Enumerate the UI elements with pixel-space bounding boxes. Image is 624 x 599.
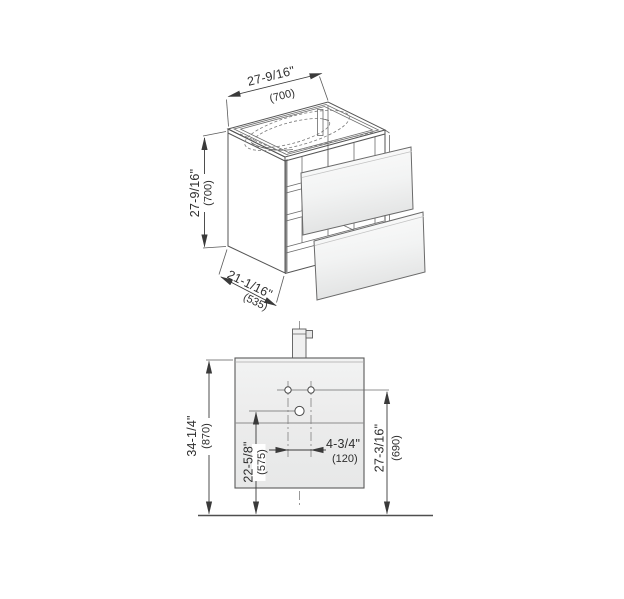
tap-spacing-mm: (120) bbox=[332, 453, 358, 465]
tap-hole-left bbox=[285, 387, 291, 393]
background bbox=[0, 0, 624, 599]
technical-drawing-page: 27-9/16" (700) 27-9/16" (700) 21-1/16" (… bbox=[0, 0, 624, 599]
tap-height-mm: (690) bbox=[391, 435, 403, 461]
overall-height-mm: (870) bbox=[201, 423, 213, 449]
waste-outlet-hole bbox=[295, 406, 304, 415]
outlet-height-inch: 22-5/8" bbox=[242, 441, 256, 482]
tap-height-inch: 27-3/16" bbox=[373, 424, 387, 472]
vanity-technical-drawing: 27-9/16" (700) 27-9/16" (700) 21-1/16" (… bbox=[0, 0, 624, 599]
iso-height-inch: 27-9/16" bbox=[188, 169, 202, 217]
tap-hole-right bbox=[308, 387, 314, 393]
outlet-height-mm: (575) bbox=[256, 449, 268, 475]
overall-height-inch: 34-1/4" bbox=[185, 415, 199, 456]
iso-height-mm: (700) bbox=[203, 180, 215, 206]
tap-spacing-inch: 4-3/4" bbox=[326, 437, 360, 451]
